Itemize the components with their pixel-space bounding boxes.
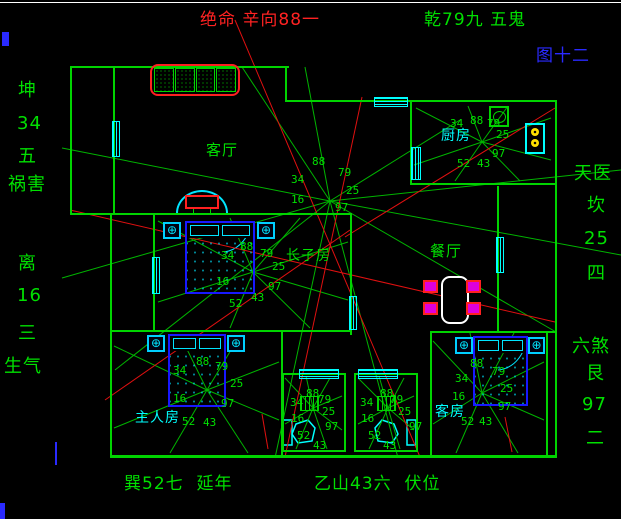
wall <box>416 373 418 452</box>
wall <box>546 331 548 457</box>
window <box>358 369 398 379</box>
text-label: 乙山43六 伏位 <box>314 476 440 493</box>
text-label: 天医 <box>574 165 612 183</box>
window <box>496 237 504 273</box>
nightstand: ⊕ <box>528 337 545 354</box>
text-label: 三 <box>18 325 37 343</box>
wall <box>282 373 284 452</box>
nightstand: ⊕ <box>455 337 473 354</box>
text-label: 长子房 <box>286 249 331 263</box>
dining-chair <box>423 302 438 315</box>
lamp-icon: ⊕ <box>231 336 241 350</box>
edge-mark <box>0 2 621 3</box>
text-label: 97 <box>582 396 607 414</box>
text-label: 厨房 <box>441 129 471 143</box>
text-label: 离 <box>18 255 37 273</box>
chart-number-eldest-son-room: 88 <box>240 241 253 252</box>
chart-number-kitchen: 52 <box>457 158 470 169</box>
chart-number-house-center: 25 <box>346 185 359 196</box>
chart-number-eldest-son-room: 79 <box>260 248 273 259</box>
chart-number-master-room: 79 <box>215 361 228 372</box>
chart-number-master-room: 52 <box>182 416 195 427</box>
dining-table <box>441 276 469 324</box>
text-label: 16 <box>17 287 42 305</box>
chart-number-house-center: 16 <box>291 194 304 205</box>
chart-number-master-room: 43 <box>203 417 216 428</box>
chart-number-kitchen: 88 <box>470 115 483 126</box>
chart-number-bath-left: 79 <box>318 394 331 405</box>
lamp-icon: ⊕ <box>459 338 469 352</box>
stove <box>525 123 545 154</box>
chart-number-bath-right: 34 <box>360 397 373 408</box>
dining-chair <box>423 280 438 293</box>
chart-number-house-center: 97 <box>335 202 348 213</box>
floorplan-canvas: ⊕ ⊕ ⊕ ⊕ ⊕ ⊕ 8879342516973488792597435288… <box>0 0 621 519</box>
dining-chair <box>466 280 481 293</box>
chart-number-bath-right: 16 <box>361 413 374 424</box>
text-label: 餐厅 <box>430 244 462 259</box>
chart-number-guest-room: 16 <box>452 391 465 402</box>
chart-number-bath-left: 43 <box>313 440 326 451</box>
chart-number-house-center: 34 <box>291 174 304 185</box>
text-label: 图十二 <box>536 48 590 65</box>
text-label: 25 <box>584 230 609 248</box>
sofa-seat <box>175 68 195 92</box>
text-label: 乾79九 五鬼 <box>424 12 526 29</box>
sofa-seat <box>154 68 174 92</box>
chart-number-guest-room: 97 <box>498 401 511 412</box>
lamp-icon: ⊕ <box>261 223 271 237</box>
chart-number-house-center: 88 <box>312 156 325 167</box>
nightstand: ⊕ <box>147 335 165 352</box>
tv-screen <box>185 195 219 209</box>
stove-burner <box>531 128 539 136</box>
edge-mark <box>55 442 57 465</box>
chart-number-kitchen: 97 <box>492 148 505 159</box>
text-label: 34 <box>17 115 42 133</box>
pillow <box>190 225 219 236</box>
text-label: 坤 <box>18 82 37 100</box>
chart-number-master-room: 88 <box>196 356 209 367</box>
wall <box>344 373 346 452</box>
direction-red-line <box>505 417 512 452</box>
wall <box>354 373 356 452</box>
wall <box>285 66 287 102</box>
chart-number-eldest-son-room: 34 <box>221 250 234 261</box>
chart-number-guest-room: 34 <box>455 373 468 384</box>
chart-number-bath-right: 79 <box>390 394 403 405</box>
stove-burner <box>531 139 539 147</box>
chart-number-bath-left: 34 <box>290 397 303 408</box>
lamp-icon: ⊕ <box>151 336 161 350</box>
chart-number-eldest-son-room: 43 <box>251 292 264 303</box>
tv-stand <box>193 209 211 214</box>
text-label: 巽52七 延年 <box>124 476 232 493</box>
text-label: 客房 <box>435 405 465 419</box>
wall <box>70 66 72 215</box>
chart-spoke-house-center <box>330 201 621 255</box>
lamp-icon: ⊕ <box>167 223 177 237</box>
sofa <box>150 64 240 96</box>
dining-chair <box>466 302 481 315</box>
chart-number-guest-room: 88 <box>470 358 483 369</box>
wall <box>110 455 557 458</box>
chart-number-bath-left: 52 <box>297 430 310 441</box>
text-label: 六煞 <box>572 338 610 356</box>
chart-number-bath-right: 52 <box>368 430 381 441</box>
wall <box>430 331 556 333</box>
chart-number-eldest-son-room: 16 <box>216 276 229 287</box>
window <box>299 369 339 379</box>
edge-mark <box>2 32 9 46</box>
text-label: 坎 <box>587 197 606 215</box>
text-label: 客厅 <box>206 143 238 158</box>
wall <box>110 213 112 457</box>
chart-number-kitchen: 25 <box>496 129 509 140</box>
chart-number-eldest-son-room: 97 <box>268 281 281 292</box>
text-label: 五 <box>18 148 37 166</box>
chart-number-kitchen: 43 <box>477 158 490 169</box>
chart-number-guest-room: 43 <box>479 416 492 427</box>
chart-number-guest-room: 25 <box>500 383 513 394</box>
direction-red-line <box>70 210 555 322</box>
chart-spoke-house-center <box>305 67 330 201</box>
chart-number-eldest-son-room: 52 <box>229 298 242 309</box>
chart-number-bath-right: 43 <box>383 440 396 451</box>
pillow <box>199 338 222 349</box>
sofa-seat <box>196 68 216 92</box>
window <box>349 296 357 330</box>
chart-number-guest-room: 79 <box>492 366 505 377</box>
wall <box>410 183 557 185</box>
chart-number-master-room: 97 <box>221 398 234 409</box>
chart-number-bath-right: 25 <box>398 406 411 417</box>
chart-number-master-room: 16 <box>173 393 186 404</box>
text-label: 二 <box>586 430 605 448</box>
window <box>112 121 120 157</box>
nightstand: ⊕ <box>163 222 181 239</box>
text-label: 生气 <box>4 358 42 376</box>
wall <box>285 100 557 102</box>
pillow <box>502 340 523 351</box>
wall <box>110 330 352 332</box>
edge-mark <box>0 503 5 519</box>
window <box>411 147 421 180</box>
text-label: 绝命 辛向88一 <box>200 12 320 29</box>
pillow <box>478 340 499 351</box>
chart-number-bath-right: 97 <box>409 421 422 432</box>
chart-number-bath-left: 97 <box>325 421 338 432</box>
text-label: 祸害 <box>8 176 46 194</box>
sofa-seat <box>216 68 236 92</box>
chart-number-bath-left: 25 <box>322 406 335 417</box>
chart-number-house-center: 79 <box>338 167 351 178</box>
wall <box>555 100 557 458</box>
direction-red-line <box>262 414 268 449</box>
pillow <box>222 225 251 236</box>
chart-number-eldest-son-room: 25 <box>272 261 285 272</box>
window <box>374 97 408 107</box>
text-label: 四 <box>587 265 606 283</box>
text-label: 艮 <box>586 365 605 383</box>
chart-number-bath-left: 16 <box>291 413 304 424</box>
pillow <box>173 338 196 349</box>
window <box>152 257 160 294</box>
chart-number-master-room: 25 <box>230 378 243 389</box>
nightstand: ⊕ <box>257 222 275 239</box>
lamp-icon: ⊕ <box>531 338 541 352</box>
chart-number-master-room: 34 <box>173 365 186 376</box>
chart-spoke-kitchen <box>414 142 482 165</box>
text-label: 主人房 <box>135 411 180 425</box>
wall <box>430 331 432 457</box>
nightstand: ⊕ <box>227 335 245 352</box>
